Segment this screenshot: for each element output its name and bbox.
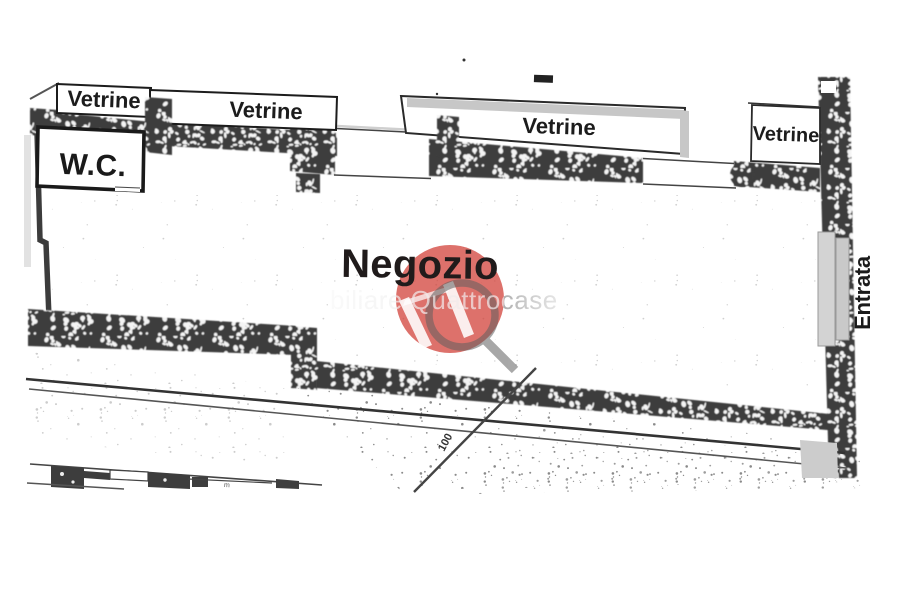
svg-text:Entrata: Entrata: [850, 255, 875, 330]
svg-text:Vetrine: Vetrine: [522, 113, 596, 140]
svg-text:Vetrine: Vetrine: [752, 123, 819, 147]
svg-text:m: m: [224, 482, 230, 489]
svg-text:Vetrine: Vetrine: [229, 97, 303, 125]
svg-text:W.C.: W.C.: [59, 148, 127, 183]
svg-text:Vetrine: Vetrine: [67, 86, 141, 114]
svg-text:Negozio: Negozio: [341, 242, 499, 288]
